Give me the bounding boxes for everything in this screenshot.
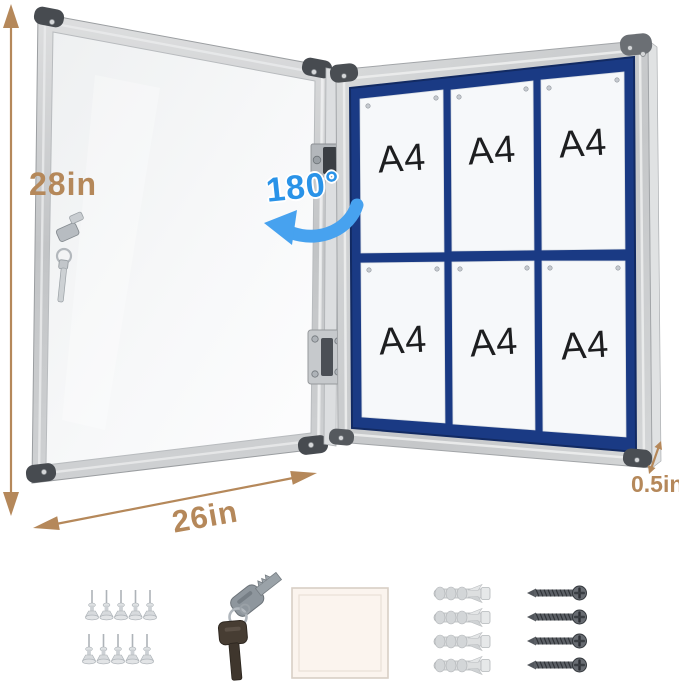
a4-sheet-label: A4: [540, 120, 627, 169]
height-label: 28in: [29, 168, 97, 200]
keys-icon: [218, 567, 286, 681]
swing-angle-label: 180°: [264, 166, 341, 208]
screws: [527, 586, 587, 672]
wall-anchors: [434, 585, 490, 675]
felt-sheet: [292, 588, 388, 678]
notice-board-panel: [328, 32, 661, 468]
height-dimension-arrow: [3, 4, 19, 516]
a4-sheet-label: A4: [451, 319, 538, 368]
a4-sheet-label: A4: [449, 127, 536, 176]
a4-sheet-label: A4: [360, 317, 447, 366]
a4-sheet-label: A4: [359, 135, 446, 184]
open-door-panel: [25, 5, 333, 483]
push-pins: [82, 590, 156, 664]
product-diagram: 28in 180° 26in 0.5in A4 A4 A4 A4 A4 A4: [0, 0, 679, 682]
a4-sheet-label: A4: [542, 322, 629, 371]
depth-label: 0.5in: [631, 473, 679, 496]
